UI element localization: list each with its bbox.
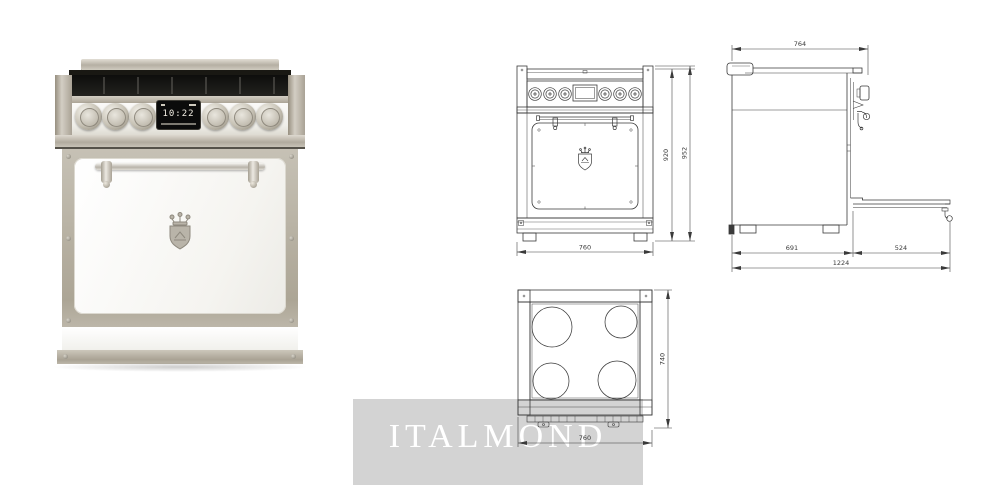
front-view-drawing: 920 952 760: [505, 55, 705, 260]
dim-top-width: 760: [579, 434, 591, 442]
dim-side-body-depth: 691: [786, 244, 798, 252]
control-knob: [229, 103, 256, 130]
dim-front-total-height: 952: [681, 147, 689, 159]
top-view-outline: [518, 290, 652, 427]
floor-shadow: [51, 362, 309, 372]
frame-screw: [289, 236, 294, 241]
side-knob-profile: [860, 86, 869, 100]
frame-screw: [66, 236, 71, 241]
ledge-trim: [55, 135, 305, 149]
towel-bar-handle: [95, 163, 265, 170]
frame-screw: [289, 318, 294, 323]
top-dimension-lines: [518, 290, 672, 447]
control-knob: [256, 103, 283, 130]
dim-side-top-depth: 764: [794, 40, 806, 48]
dim-top-depth: 740: [659, 353, 667, 365]
handle-bracket: [101, 161, 112, 183]
side-open-door: [851, 198, 953, 221]
control-knob: [75, 103, 102, 130]
side-dimension-lines: [732, 45, 950, 272]
top-knob-row: [527, 416, 643, 427]
dim-side-open-door-depth: 524: [895, 244, 907, 252]
display-status-icons: [161, 104, 196, 106]
front-crest: [579, 147, 592, 170]
control-knob: [129, 103, 156, 130]
front-oven-door: [532, 123, 638, 209]
control-knob: [202, 103, 229, 130]
plinth: [62, 327, 298, 350]
display-time: 10:22: [157, 109, 200, 119]
base-screw: [63, 354, 68, 359]
frame-screw: [66, 318, 71, 323]
front-view-outline: [517, 66, 653, 241]
crest-emblem: [165, 211, 195, 253]
display-text-row: [161, 123, 196, 125]
top-view-drawing: 740 760: [505, 283, 705, 451]
dim-side-total-depth: 1224: [833, 259, 850, 267]
side-view-outline: [727, 63, 952, 234]
frame-screw: [66, 154, 71, 159]
side-handle-bracket: [857, 112, 870, 130]
page: ITALMOND 10:22: [0, 0, 999, 485]
base-screw: [291, 354, 296, 359]
product-photo: 10:22: [55, 55, 305, 367]
cooktop-grates: [71, 77, 289, 94]
oven-display: 10:22: [157, 101, 200, 129]
control-knob: [102, 103, 129, 130]
dim-front-inner-height: 920: [662, 149, 670, 161]
cooking-zones: [532, 306, 637, 399]
dim-front-width: 760: [579, 244, 591, 252]
frame-screw: [289, 154, 294, 159]
side-view-drawing: 764 691 524 1224: [715, 25, 999, 285]
handle-bracket: [248, 161, 259, 183]
backsplash-rail: [81, 59, 279, 70]
